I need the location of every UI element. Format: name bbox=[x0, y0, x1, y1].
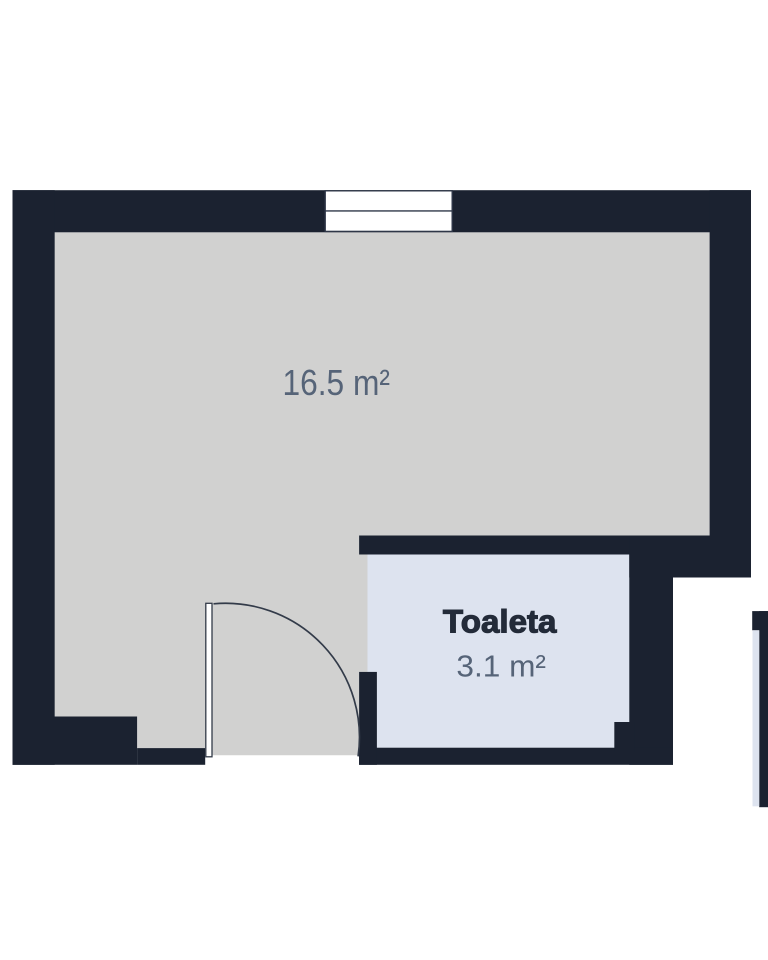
svg-text:3.1 m²: 3.1 m² bbox=[456, 650, 546, 684]
svg-text:16.5 m²: 16.5 m² bbox=[282, 362, 390, 403]
svg-text:Toaleta: Toaleta bbox=[443, 604, 557, 640]
